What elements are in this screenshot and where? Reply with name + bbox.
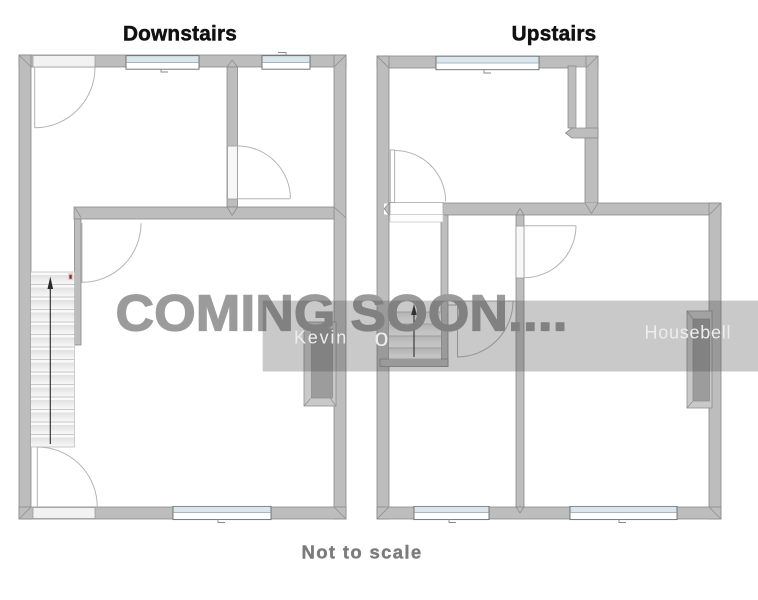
svg-text:o: o bbox=[375, 324, 389, 352]
svg-text:Kevin: Kevin bbox=[294, 328, 348, 348]
svg-text:Upstairs: Upstairs bbox=[512, 23, 597, 46]
svg-text:Downstairs: Downstairs bbox=[123, 23, 237, 46]
svg-text:Housebell: Housebell bbox=[645, 323, 732, 343]
svg-text:Not to scale: Not to scale bbox=[302, 542, 423, 563]
